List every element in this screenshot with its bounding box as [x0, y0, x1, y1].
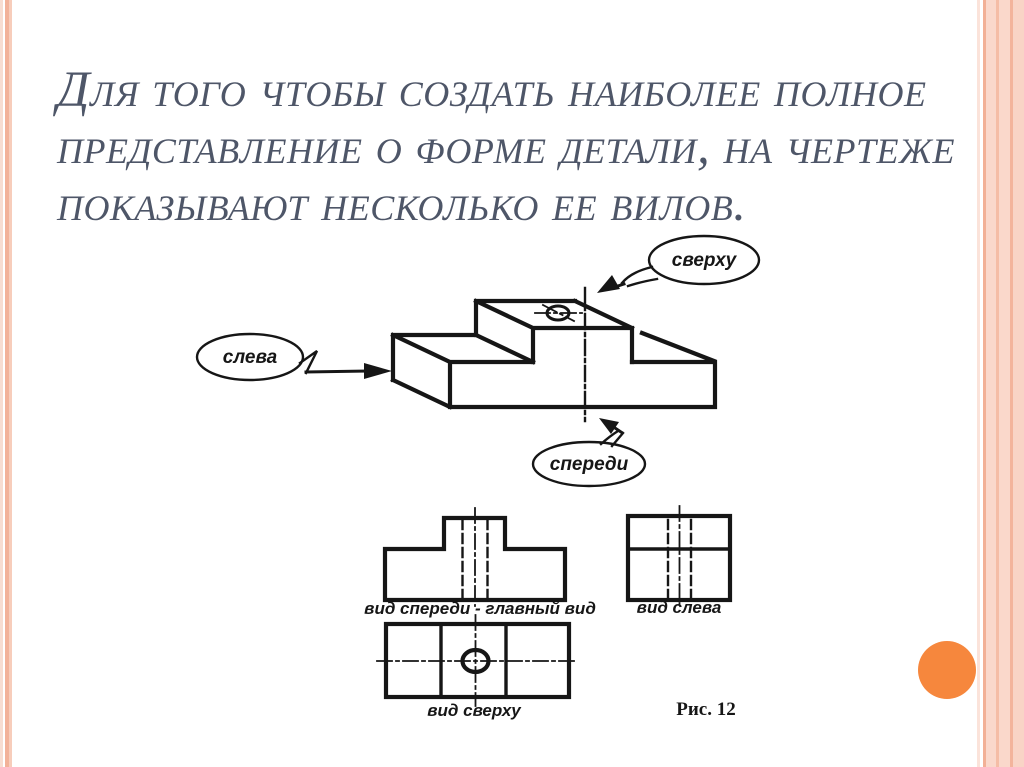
- front-view-label: вид спереди - главный вид: [364, 599, 596, 618]
- callout-label-top: сверху: [672, 250, 738, 271]
- callout-tail: [622, 267, 657, 286]
- callout-top: сверху: [597, 236, 759, 293]
- figure-drawing: сверху слева спереди вид спереди - главн…: [0, 0, 1024, 767]
- callout-label-front: спереди: [550, 454, 629, 475]
- front-view: вид спереди - главный вид: [364, 508, 596, 618]
- base-outline: [393, 333, 715, 407]
- callout-left: слева: [197, 334, 392, 380]
- arrow-head: [597, 275, 620, 293]
- callout-label-left: слева: [223, 347, 278, 368]
- figure-caption: Рис. 12: [676, 699, 736, 720]
- left-view: вид слева: [628, 506, 730, 617]
- top-view: вид сверху: [377, 615, 578, 720]
- arrow-head: [364, 363, 392, 379]
- callout-front: спереди: [533, 418, 645, 486]
- presentation-slide: Для того чтобы создать наиболее полное п…: [0, 0, 1024, 767]
- pictorial-view: [393, 288, 715, 421]
- left-view-label: вид слева: [637, 598, 722, 617]
- top-view-label: вид сверху: [427, 701, 522, 720]
- arrow-shaft: [306, 371, 367, 372]
